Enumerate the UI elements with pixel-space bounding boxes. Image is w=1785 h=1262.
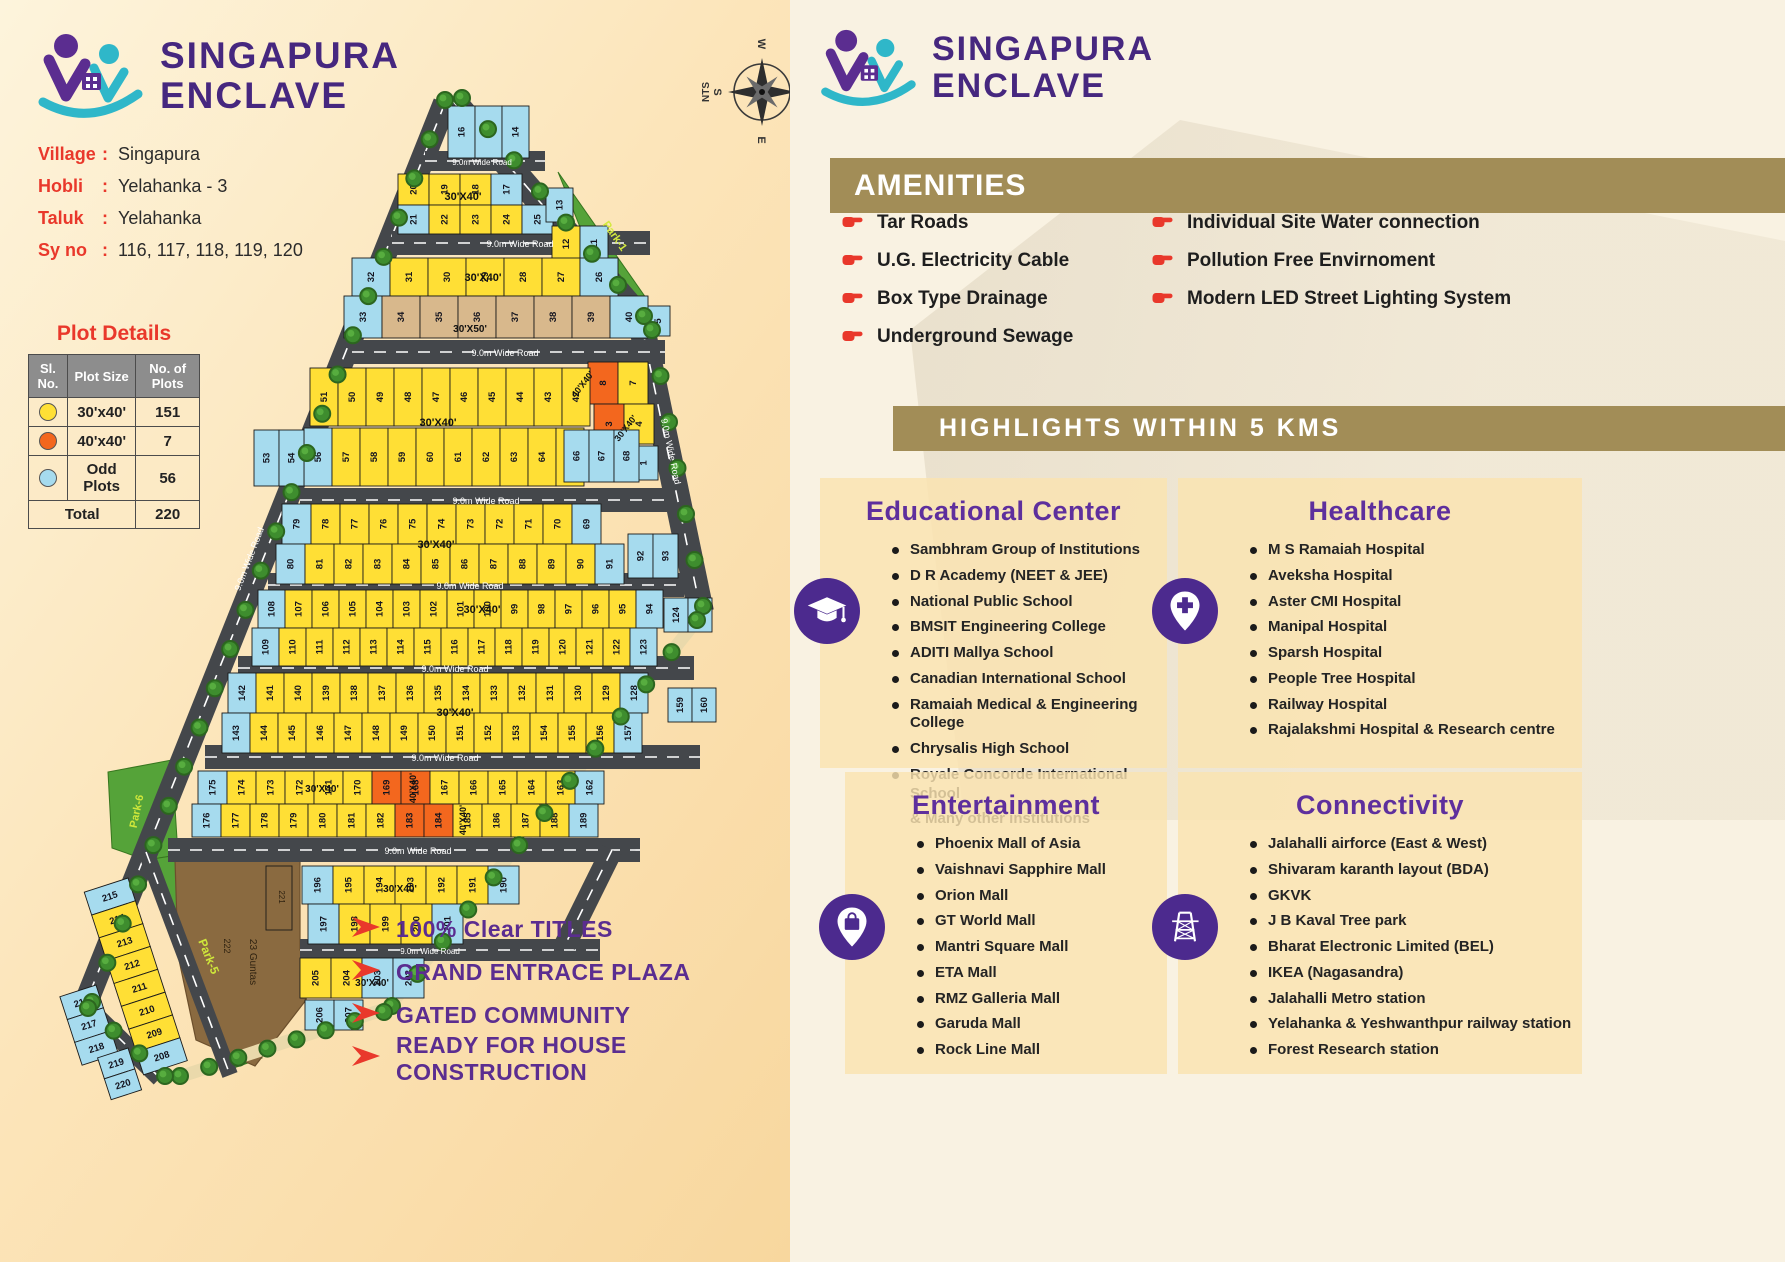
plot xyxy=(333,866,364,904)
plot-number: 59 xyxy=(397,452,408,463)
plot-number: 36 xyxy=(472,312,483,323)
plot xyxy=(366,368,394,426)
map-label: 40'X40' xyxy=(458,805,468,835)
plot xyxy=(393,590,420,628)
plot xyxy=(474,713,502,753)
plot xyxy=(543,504,572,544)
map-labels: 9.0m Wide Road9.0m Wide Road9.0m Wide Ro… xyxy=(128,158,683,989)
plot-number: 196 xyxy=(313,877,324,893)
plot xyxy=(420,590,447,628)
plot-details: Plot Details Sl. No.Plot SizeNo. of Plot… xyxy=(28,322,200,529)
plot xyxy=(129,1015,180,1052)
plot-number: 156 xyxy=(595,725,606,741)
plot-number: 60 xyxy=(425,452,436,463)
plot-number: 188 xyxy=(550,813,561,829)
card-connectivity: Connectivity Jalahalli airforce (East & … xyxy=(1178,772,1582,1074)
plot-number: 116 xyxy=(450,639,461,654)
plot xyxy=(360,428,388,486)
plot xyxy=(362,713,390,753)
plot xyxy=(540,804,569,837)
plot xyxy=(398,205,429,234)
plot xyxy=(556,428,584,486)
bullet-icon xyxy=(1250,841,1257,848)
plot xyxy=(360,628,387,666)
table-header-row: Sl. No.Plot SizeNo. of Plots xyxy=(29,355,200,398)
plot xyxy=(491,205,522,234)
plot-number: 54 xyxy=(287,452,298,463)
plot xyxy=(228,673,256,713)
plot xyxy=(368,673,396,713)
plot xyxy=(339,590,366,628)
plot xyxy=(67,1008,111,1043)
plot-number: 123 xyxy=(639,639,650,655)
plot-number: 135 xyxy=(433,684,444,701)
plot xyxy=(592,673,620,713)
bullet-icon xyxy=(892,599,899,606)
plot-number: 157 xyxy=(623,725,634,741)
plot-number: 57 xyxy=(341,452,352,463)
plot xyxy=(98,1048,135,1079)
plot-number: 82 xyxy=(344,559,355,570)
plot xyxy=(629,446,658,480)
plot xyxy=(506,368,534,426)
plot-number: 139 xyxy=(321,685,332,701)
list-item-text: Forest Research station xyxy=(1268,1041,1439,1060)
plot-number: 74 xyxy=(437,518,448,529)
plot-number: 121 xyxy=(585,638,596,655)
list-item: People Tree Hospital xyxy=(1250,670,1574,689)
list-item-text: Shivaram karanth layout (BDA) xyxy=(1268,861,1489,880)
plot xyxy=(428,258,466,296)
plot-number: 185 xyxy=(463,812,474,829)
plot xyxy=(258,590,285,628)
list-item: Railway Hospital xyxy=(1250,696,1574,715)
list-item-text: Aveksha Hospital xyxy=(1268,567,1393,586)
site-info-row: Hobli:Yelahanka - 3 xyxy=(38,176,303,197)
plot xyxy=(276,544,305,584)
entertainment-list: Phoenix Mall of AsiaVaishnavi Sapphire M… xyxy=(917,835,1159,1060)
plot xyxy=(352,258,390,296)
plot xyxy=(426,866,457,904)
plot xyxy=(580,226,608,262)
plot-number: 45 xyxy=(487,391,498,402)
plot xyxy=(624,404,654,444)
plot-number: 208 xyxy=(153,1049,171,1064)
amenities-list-left: Tar RoadsU.G. Electricity CableBox Type … xyxy=(842,204,1073,356)
plot xyxy=(460,174,491,205)
plot-number: 46 xyxy=(459,392,470,403)
list-item-text: Vaishnavi Sapphire Mall xyxy=(935,861,1106,880)
plot xyxy=(542,258,580,296)
road xyxy=(146,852,230,1075)
plot xyxy=(692,688,716,722)
plot xyxy=(279,804,308,837)
plot xyxy=(485,504,514,544)
map-label: 40'X40' xyxy=(569,369,596,399)
tree-icon xyxy=(562,773,578,789)
plot xyxy=(395,866,426,904)
table-total-row: Total220 xyxy=(29,501,200,529)
list-item-text: ADITI Mallya School xyxy=(910,644,1053,663)
plot-number: 93 xyxy=(661,551,672,562)
list-item: Forest Research station xyxy=(1250,1041,1574,1060)
plot-size-cell: 40'x40' xyxy=(67,427,135,456)
plot xyxy=(504,258,542,296)
plot xyxy=(668,688,692,722)
tree-icon xyxy=(115,916,131,932)
card-healthcare: Healthcare M S Ramaiah HospitalAveksha H… xyxy=(1178,478,1582,768)
plot-number: 25 xyxy=(533,214,544,225)
bullet-icon xyxy=(1250,893,1257,900)
list-item: Jalahalli Metro station xyxy=(1250,990,1574,1009)
plot xyxy=(636,590,663,628)
tree-icon xyxy=(106,1023,122,1039)
tree-icon xyxy=(191,719,207,735)
feature-text: GATED COMMUNITY xyxy=(396,1002,631,1029)
plot xyxy=(285,590,312,628)
tree-icon xyxy=(506,152,522,168)
bullet-icon xyxy=(917,841,924,848)
list-item-text: Canadian International School xyxy=(910,670,1126,689)
plot-number: 31 xyxy=(404,271,415,282)
bullet-icon xyxy=(1250,702,1257,709)
graduation-cap-icon xyxy=(794,578,860,644)
plot xyxy=(388,428,416,486)
plot xyxy=(337,804,366,837)
plot xyxy=(534,296,572,338)
tree-icon xyxy=(689,612,705,628)
plot-number: 174 xyxy=(237,779,248,796)
plot xyxy=(369,504,398,544)
plot-number: 67 xyxy=(597,451,608,462)
plot xyxy=(522,205,553,234)
table-header-cell: Sl. No. xyxy=(29,355,68,398)
plot xyxy=(75,1031,119,1066)
plot-number: 76 xyxy=(379,519,390,530)
plot xyxy=(107,946,158,983)
plot xyxy=(566,544,595,584)
bullet-icon xyxy=(1250,867,1257,874)
plot-number: 79 xyxy=(292,519,303,530)
plot xyxy=(279,430,304,486)
bullet-icon xyxy=(1250,599,1257,606)
healthcare-title: Healthcare xyxy=(1178,496,1582,527)
plot xyxy=(614,430,639,482)
plot xyxy=(250,804,279,837)
plot xyxy=(457,866,488,904)
list-item-text: ETA Mall xyxy=(935,964,997,983)
plot-number: 97 xyxy=(564,604,575,615)
plot xyxy=(501,590,528,628)
plot xyxy=(528,590,555,628)
bullet-icon xyxy=(917,996,924,1003)
plot-number: 10 xyxy=(597,280,608,291)
plot-number: 56 xyxy=(313,452,324,463)
table-header-cell: No. of Plots xyxy=(136,355,200,398)
list-item: Rock Line Mall xyxy=(917,1041,1159,1060)
tree-icon xyxy=(268,523,284,539)
plot-number: 6 xyxy=(629,318,640,323)
plot-number: 32 xyxy=(366,272,377,283)
tree-icon xyxy=(532,183,548,199)
bullet-icon xyxy=(892,624,899,631)
plot-number: 68 xyxy=(622,451,633,462)
tree-icon xyxy=(480,121,496,137)
tree-icon xyxy=(299,445,315,461)
legend-dot-icon xyxy=(39,469,57,487)
info-label: Hobli xyxy=(38,176,102,197)
plot-number: 96 xyxy=(591,604,602,615)
plot-number: 88 xyxy=(518,559,529,570)
plot-number: 169 xyxy=(382,780,393,796)
plot-number: 33 xyxy=(358,312,369,323)
plot xyxy=(422,368,450,426)
bullet-icon xyxy=(892,650,899,657)
tree-icon xyxy=(636,308,652,324)
arrow-icon xyxy=(350,1000,382,1031)
plot xyxy=(398,174,429,205)
amenity-text: Underground Sewage xyxy=(877,326,1073,348)
plot xyxy=(564,430,589,482)
list-item: Garuda Mall xyxy=(917,1015,1159,1034)
plot xyxy=(84,878,135,915)
bullet-icon xyxy=(1250,996,1257,1003)
bullet-icon xyxy=(892,573,899,580)
amenity-item: Tar Roads xyxy=(842,204,1073,242)
brand-name: SINGAPURA ENCLAVE xyxy=(160,36,400,116)
plot-number: 148 xyxy=(371,725,382,741)
list-item-text: Garuda Mall xyxy=(935,1015,1021,1034)
list-item: Rajalakshmi Hospital & Research centre xyxy=(1250,721,1574,740)
plot xyxy=(308,904,339,944)
legend-dot-icon xyxy=(39,403,57,421)
list-item: M S Ramaiah Hospital xyxy=(1250,541,1574,560)
plot-number: 65 xyxy=(565,451,576,462)
plot-number: 147 xyxy=(343,725,354,741)
pointing-hand-icon xyxy=(842,327,863,347)
list-item-text: Sambhram Group of Institutions xyxy=(910,541,1140,560)
list-item-text: Sparsh Hospital xyxy=(1268,644,1382,663)
list-item-text: People Tree Hospital xyxy=(1268,670,1416,689)
plot xyxy=(424,804,453,837)
plot-number: 175 xyxy=(208,779,219,796)
plot xyxy=(340,673,368,713)
plot xyxy=(390,258,428,296)
plot xyxy=(92,901,143,938)
map-label: 222 xyxy=(222,938,232,953)
entertainment-title: Entertainment xyxy=(845,790,1167,821)
plot-number: 117 xyxy=(477,639,488,654)
plot xyxy=(300,958,331,998)
tree-icon xyxy=(406,170,422,186)
list-item-text: BMSIT Engineering College xyxy=(910,618,1106,637)
plot-number: 66 xyxy=(572,451,583,462)
plot xyxy=(514,504,543,544)
plot xyxy=(562,368,590,426)
list-item-text: M S Ramaiah Hospital xyxy=(1268,541,1425,560)
plot-number: 195 xyxy=(344,876,355,893)
map-label: 9.0m Wide Road xyxy=(471,348,538,358)
features-list: 100% Clear TITLESGRAND ENTRACE PLAZAGATE… xyxy=(350,908,790,1080)
plot-number: 141 xyxy=(265,684,276,701)
tree-icon xyxy=(678,506,694,522)
medical-pin-icon xyxy=(1152,578,1218,644)
plot xyxy=(479,544,508,584)
compass-e-label: E xyxy=(755,136,767,143)
plot xyxy=(279,628,306,666)
plot xyxy=(474,590,501,628)
plot-number: 218 xyxy=(87,1041,105,1056)
list-item: Aveksha Hospital xyxy=(1250,567,1574,586)
plot-number: 38 xyxy=(548,312,559,323)
plot-number: 137 xyxy=(377,685,388,701)
plot xyxy=(582,590,609,628)
plot xyxy=(569,804,598,837)
plot-number: 220 xyxy=(114,1077,132,1092)
plot xyxy=(502,713,530,753)
plot xyxy=(588,266,616,304)
plot xyxy=(609,590,636,628)
plot-number: 166 xyxy=(469,780,480,796)
plot xyxy=(227,771,256,804)
plot-number: 133 xyxy=(489,685,500,701)
plot-number: 89 xyxy=(547,559,558,570)
plot-number: 15 xyxy=(484,126,495,137)
plot xyxy=(198,771,227,804)
road-centerline xyxy=(146,852,230,1075)
plot xyxy=(453,804,482,837)
plot-number: 101 xyxy=(456,600,467,617)
map-label: 9.0m Wide Road xyxy=(421,664,488,674)
tree-icon xyxy=(376,249,392,265)
list-item: Ramaiah Medical & Engineering College xyxy=(892,696,1159,734)
plot-number: 42 xyxy=(571,392,582,403)
plot xyxy=(334,544,363,584)
plot-number: 110 xyxy=(288,639,299,654)
map-label: 23 Guntas xyxy=(247,939,258,985)
plot xyxy=(395,804,424,837)
plot-number: 107 xyxy=(294,601,305,617)
plot xyxy=(306,628,333,666)
plot-number: 27 xyxy=(556,272,567,283)
plot-number: 5 xyxy=(653,318,664,324)
list-item-text: RMZ Galleria Mall xyxy=(935,990,1060,1009)
map-label: 30'X40' xyxy=(444,191,481,203)
plot-number: 212 xyxy=(123,958,141,973)
plot-number: 160 xyxy=(699,697,710,713)
list-item-text: Bharat Electronic Limited (BEL) xyxy=(1268,938,1494,957)
plot-details-title: Plot Details xyxy=(28,322,200,346)
tree-icon xyxy=(237,602,253,618)
plot-number: 180 xyxy=(318,813,329,829)
brand-logo: SINGAPURA ENCLAVE xyxy=(34,26,400,126)
plot-number: 162 xyxy=(585,780,596,796)
map-label: Park-6 xyxy=(128,794,147,829)
plot-number: 14 xyxy=(511,126,522,137)
plot-number: 179 xyxy=(289,813,300,829)
plot-number: 86 xyxy=(460,559,471,570)
plot-number: 125 xyxy=(695,606,706,623)
plot-number: 111 xyxy=(315,639,326,655)
shopping-pin-icon xyxy=(819,894,885,960)
amenity-text: Pollution Free Envirnoment xyxy=(1187,250,1435,272)
plot-number: 173 xyxy=(266,780,277,796)
tree-icon xyxy=(664,644,680,660)
list-item-text: Rajalakshmi Hospital & Research centre xyxy=(1268,721,1555,740)
plot-number: 210 xyxy=(138,1003,156,1018)
plot xyxy=(99,924,150,961)
info-value: Yelahanka - 3 xyxy=(118,176,227,197)
plot-number: 146 xyxy=(315,725,326,741)
plot-number: 151 xyxy=(455,724,466,741)
plot xyxy=(618,362,648,404)
plot xyxy=(572,504,601,544)
plot xyxy=(136,1038,187,1075)
info-label: Sy no xyxy=(38,240,102,261)
brand-name: SINGAPURA ENCLAVE xyxy=(932,31,1154,104)
table-row: 30'x40'151 xyxy=(29,398,200,427)
plot-number: 98 xyxy=(537,604,548,615)
plot xyxy=(595,544,624,584)
amenities-title: AMENITIES xyxy=(854,169,1026,203)
plot-number: 48 xyxy=(403,392,414,403)
list-item: BMSIT Engineering College xyxy=(892,618,1159,637)
plot-number: 170 xyxy=(353,780,364,796)
plot-number: 153 xyxy=(511,725,522,741)
plot-number: 164 xyxy=(527,779,538,796)
plot xyxy=(114,969,165,1006)
plot-number: 94 xyxy=(645,603,656,614)
plot-number: 115 xyxy=(423,639,434,655)
plot-number: 187 xyxy=(521,813,532,829)
plot-number: 205 xyxy=(311,969,322,986)
info-value: 116, 117, 118, 119, 120 xyxy=(118,240,303,261)
amenity-item: U.G. Electricity Cable xyxy=(842,242,1073,280)
plot-number: 75 xyxy=(408,518,419,529)
brand-logo-icon xyxy=(818,22,918,114)
plot xyxy=(340,504,369,544)
brand-line-1: SINGAPURA xyxy=(160,36,400,76)
tree-icon xyxy=(84,994,100,1010)
plot-number: 152 xyxy=(483,725,494,741)
plot-details-table: Sl. No.Plot SizeNo. of Plots30'x40'15140… xyxy=(28,354,200,529)
plot xyxy=(366,590,393,628)
plot-number: 130 xyxy=(573,685,584,701)
amenity-text: U.G. Electricity Cable xyxy=(877,250,1069,272)
plot xyxy=(334,713,362,753)
plot xyxy=(396,673,424,713)
pointing-hand-icon xyxy=(842,289,863,309)
plot-number: 155 xyxy=(567,724,578,741)
plot xyxy=(488,771,517,804)
tree-icon xyxy=(511,837,527,853)
plot-size-cell: Odd Plots xyxy=(67,456,135,501)
bullet-icon xyxy=(1250,1047,1257,1054)
plot-number: 85 xyxy=(431,558,442,569)
plot-number: 18 xyxy=(471,184,482,195)
plot xyxy=(104,1069,141,1100)
plot-number: 191 xyxy=(468,876,479,893)
plot xyxy=(305,544,334,584)
plot-number: 16 xyxy=(457,127,468,138)
plot-number: 112 xyxy=(342,639,353,654)
plot-number: 81 xyxy=(315,558,326,569)
plot-number: 154 xyxy=(539,724,550,741)
plot-number: 69 xyxy=(582,519,593,530)
plot xyxy=(401,771,430,804)
plot xyxy=(429,205,460,234)
list-item: D R Academy (NEET & JEE) xyxy=(892,567,1159,586)
